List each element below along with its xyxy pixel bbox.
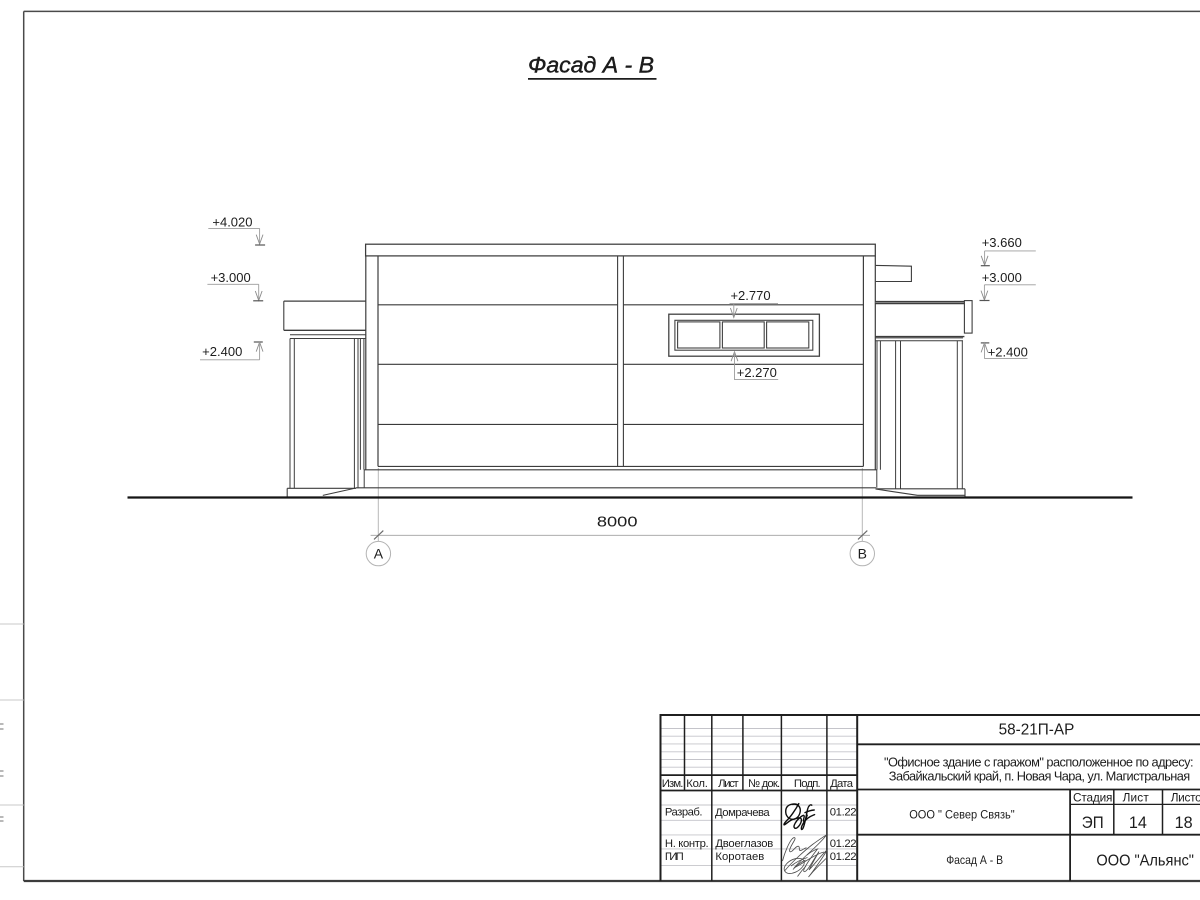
svg-text:ООО "Альянс": ООО "Альянс" <box>1096 853 1194 870</box>
svg-text:Коротаев: Коротаев <box>715 851 764 863</box>
svg-text:Н. контр.: Н. контр. <box>665 838 709 850</box>
svg-text:18: 18 <box>1175 814 1193 832</box>
svg-text:Кол.: Кол. <box>686 778 708 790</box>
svg-text:+3.000: +3.000 <box>982 270 1022 285</box>
svg-text:Фасад А - В: Фасад А - В <box>946 854 1003 867</box>
svg-text:+3.000: +3.000 <box>211 270 251 285</box>
svg-text:А: А <box>374 545 384 561</box>
svg-text:Подп.: Подп. <box>794 778 821 790</box>
svg-text:Забайкальский край, п. Новая Ч: Забайкальский край, п. Новая Чара, ул. М… <box>889 768 1190 783</box>
svg-text:В: В <box>858 545 867 561</box>
svg-text:+3.660: +3.660 <box>982 235 1022 250</box>
svg-text:Листов: Листов <box>1171 791 1200 805</box>
svg-text:ЭП: ЭП <box>1082 814 1104 832</box>
svg-text:№ док.: № док. <box>748 778 780 790</box>
svg-text:+2.400: +2.400 <box>202 344 242 359</box>
svg-text:Стадия: Стадия <box>1073 791 1112 805</box>
svg-text:Фасад А - В: Фасад А - В <box>528 52 654 77</box>
svg-text:14: 14 <box>1129 814 1147 832</box>
svg-text:Изм.: Изм. <box>662 778 684 790</box>
svg-text:+2.400: +2.400 <box>988 344 1028 359</box>
svg-text:+2.770: +2.770 <box>730 288 770 303</box>
svg-text:58-21П-АР: 58-21П-АР <box>999 721 1075 738</box>
svg-text:Двоеглазов: Двоеглазов <box>715 838 773 850</box>
svg-text:Домрачева: Домрачева <box>715 807 770 819</box>
svg-text:+2.270: +2.270 <box>737 365 777 380</box>
svg-text:8000: 8000 <box>597 514 638 531</box>
svg-text:Разраб.: Разраб. <box>665 806 703 818</box>
svg-text:Дата: Дата <box>830 778 854 790</box>
svg-text:01.22: 01.22 <box>830 806 857 818</box>
svg-text:ГИП: ГИП <box>665 851 684 863</box>
svg-text:01.22: 01.22 <box>830 838 857 850</box>
svg-text:01.22: 01.22 <box>830 851 857 863</box>
svg-text:ООО " Север Связь": ООО " Север Связь" <box>909 808 1015 822</box>
svg-text:+4.020: +4.020 <box>212 215 252 230</box>
svg-text:Лист: Лист <box>718 778 739 790</box>
svg-text:Лист: Лист <box>1123 791 1150 805</box>
svg-text:"Офисное здание с гаражом" рас: "Офисное здание с гаражом" расположенное… <box>884 755 1194 770</box>
